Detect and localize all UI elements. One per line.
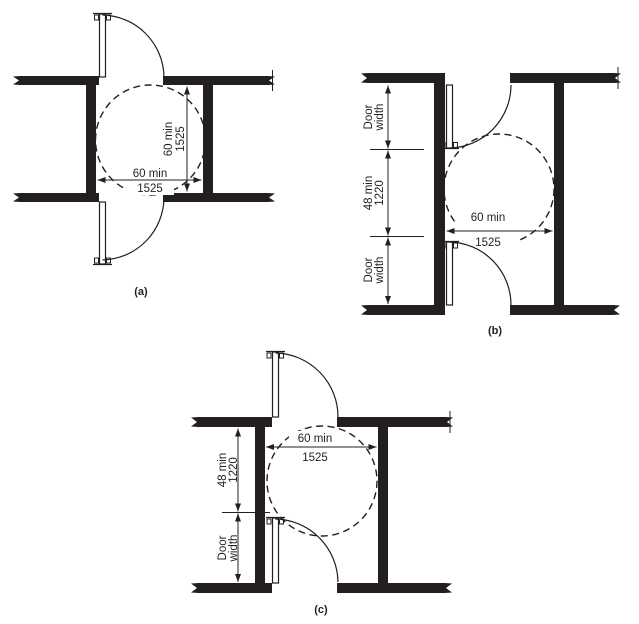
- door-leaf: [273, 352, 279, 417]
- wall-top-left: [368, 73, 445, 83]
- door-leaf: [100, 202, 106, 264]
- wall-break-left: [13, 76, 20, 85]
- wall-left-vertical: [86, 85, 96, 193]
- dimension-label: 60 min: [298, 433, 333, 445]
- figure-b: Door width 48 min 1220 Door width 60 min…: [361, 67, 621, 337]
- wall-break-right: [613, 305, 620, 315]
- figure-c: 48 min 1220 Door width 60 min 1525 (c): [191, 352, 453, 617]
- wall-top-right: [510, 73, 614, 83]
- figure-caption: (c): [314, 604, 328, 616]
- wall-bottom-left: [198, 583, 272, 593]
- wall-break-right: [445, 583, 452, 593]
- door-swing-arc: [450, 85, 512, 148]
- wall-break-right: [268, 76, 275, 85]
- door-swing-arc: [276, 519, 339, 582]
- dimension-label: 60 min: [133, 168, 168, 180]
- door-swing-arc: [103, 198, 165, 260]
- diagram-svg: 60 min 1525 60 min 1525 (a): [0, 0, 639, 624]
- wall-bottom-right: [163, 193, 268, 202]
- wall-top-right: [163, 76, 268, 85]
- door-leaf: [447, 242, 453, 305]
- figure-caption: (b): [488, 325, 502, 337]
- wall-break-left: [191, 417, 198, 427]
- wall-left-vertical: [255, 427, 265, 583]
- wall-right-vertical: [554, 83, 564, 305]
- dimension-value: 1220: [374, 180, 386, 206]
- wall-right-vertical: [203, 85, 213, 193]
- wall-top-left: [20, 76, 99, 85]
- wall-bottom-left: [368, 305, 445, 315]
- dimension-label: 60 min: [471, 212, 506, 224]
- wall-top-left: [198, 417, 272, 427]
- wall-break-left: [361, 305, 368, 315]
- dimension-label: width: [374, 257, 386, 285]
- wall-break-left: [361, 73, 368, 83]
- wall-bottom-left: [20, 193, 99, 202]
- dimension-value: 1525: [302, 452, 328, 464]
- wall-bottom-right: [510, 305, 613, 315]
- dimension-value: 1525: [475, 237, 501, 249]
- wall-break-left: [13, 193, 20, 202]
- dimension-value: 1525: [137, 183, 163, 195]
- dimension-label: width: [228, 535, 240, 563]
- door-jamb-symbol: [267, 353, 271, 358]
- door-jamb-symbol: [95, 258, 99, 263]
- door-jamb-symbol: [454, 143, 458, 148]
- doors-in-series-diagram: 60 min 1525 60 min 1525 (a): [0, 0, 639, 624]
- door-leaf: [100, 14, 106, 77]
- door-leaf: [273, 518, 279, 583]
- figure-caption: (a): [134, 286, 148, 298]
- door-jamb-symbol: [454, 243, 458, 248]
- door-jamb-symbol: [267, 519, 271, 524]
- dimension-label: 60 min: [163, 122, 175, 157]
- wall-bottom-right: [337, 583, 445, 593]
- wall-break-left: [191, 583, 198, 593]
- door-jamb-symbol: [107, 258, 111, 263]
- door-swing-arc: [450, 242, 512, 305]
- figure-a: 60 min 1525 60 min 1525 (a): [13, 14, 275, 299]
- door-jamb-symbol: [95, 15, 99, 20]
- door-swing-arc: [103, 15, 165, 77]
- dimension-label: width: [374, 104, 386, 132]
- wall-left-vertical: [434, 83, 445, 305]
- wall-top-right: [337, 417, 446, 427]
- wall-right-vertical: [378, 427, 388, 583]
- wall-break-right: [268, 193, 275, 202]
- door-swing-arc: [276, 353, 339, 418]
- dimension-value: 1525: [175, 126, 187, 152]
- dimension-value: 1220: [228, 457, 240, 483]
- door-leaf: [447, 85, 453, 148]
